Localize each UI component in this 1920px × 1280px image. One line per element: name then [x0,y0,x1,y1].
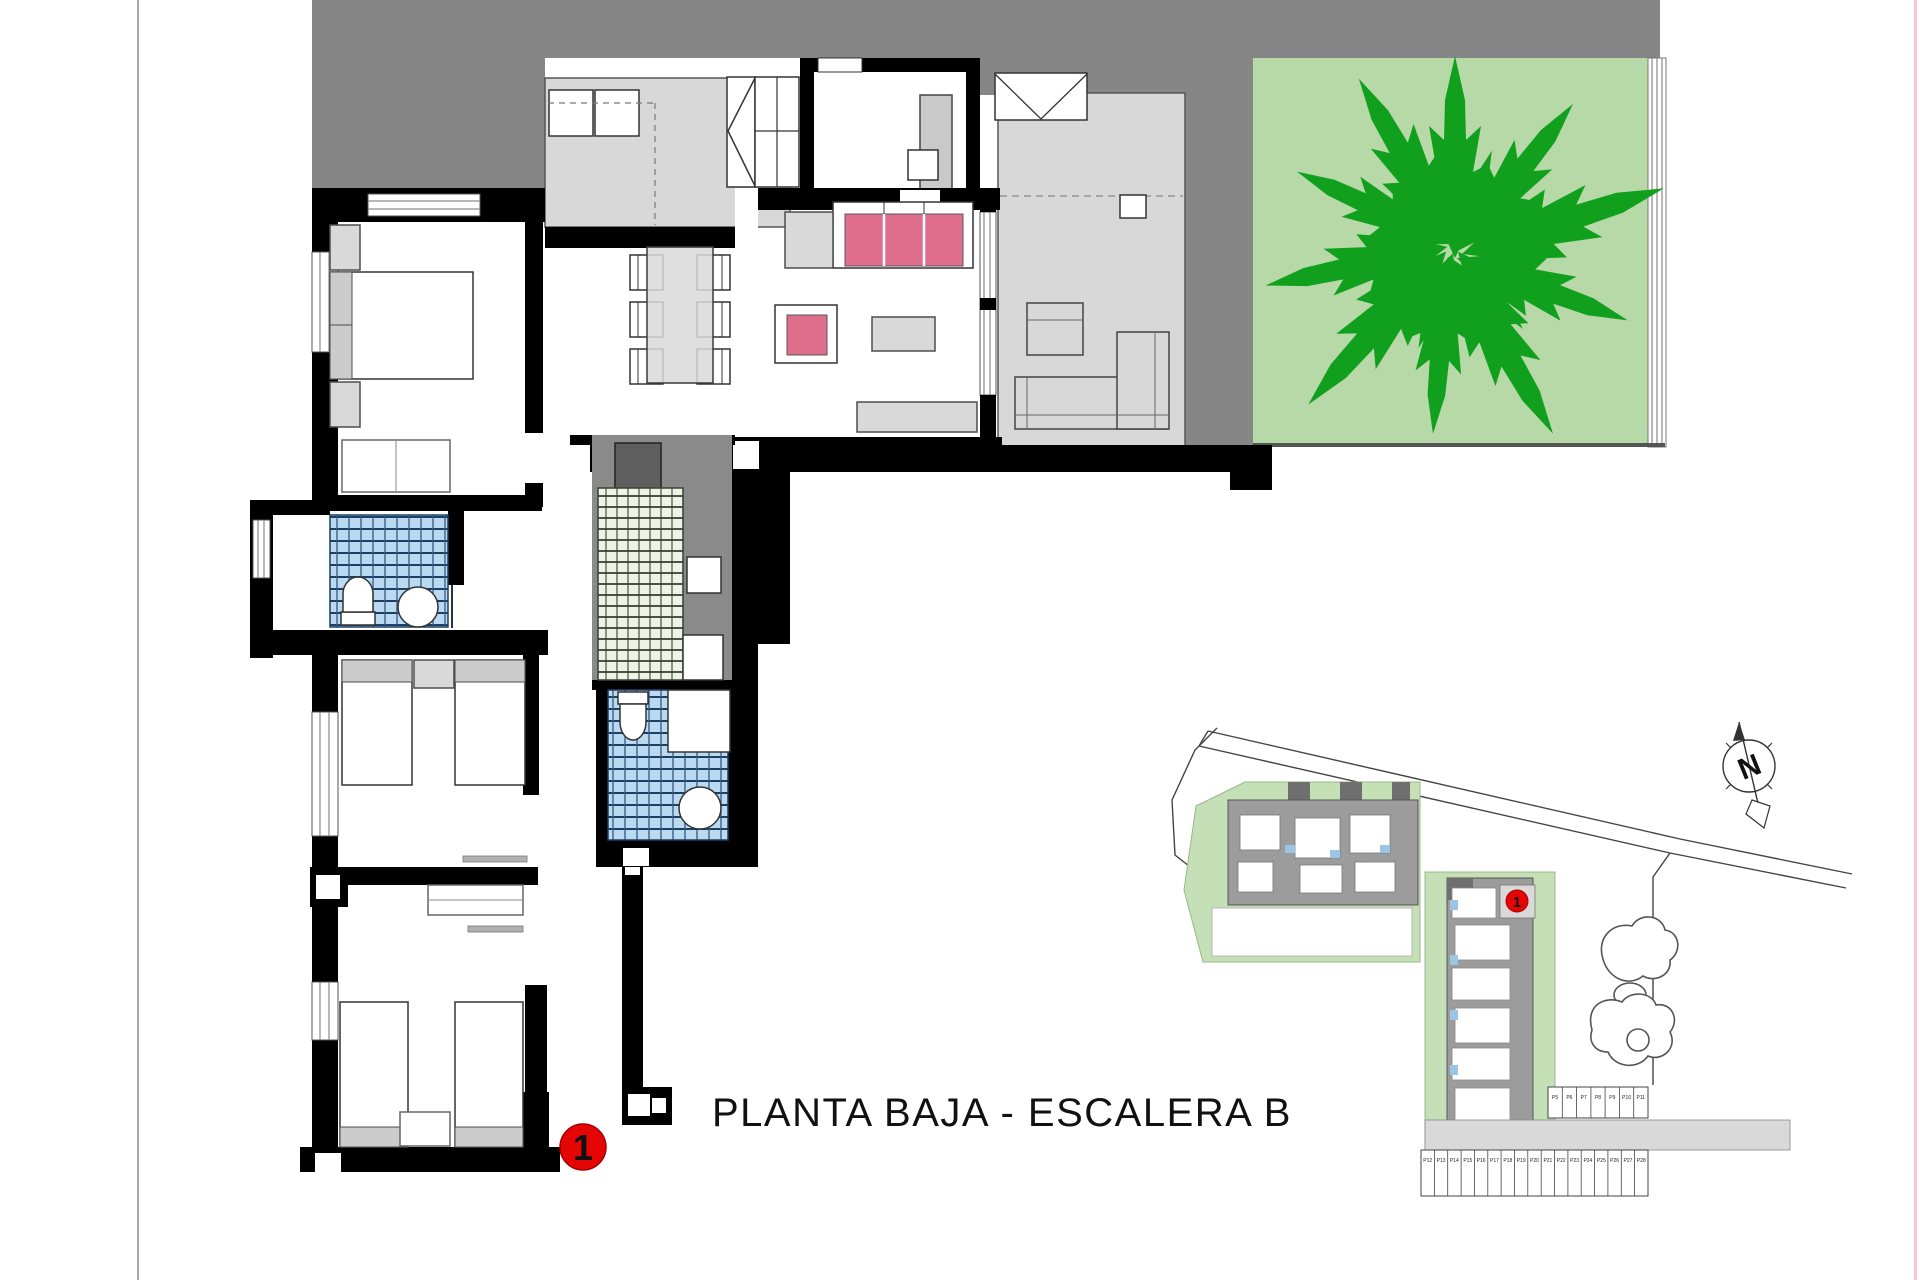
parking-label: P21 [1543,1158,1552,1164]
folding-door [727,77,755,187]
parking-row-bottom: P12 P13 P14 P15 P16 P17 P18 P19 P20 P21 … [1421,1150,1648,1196]
parking-label: P12 [1423,1158,1432,1164]
window [312,982,338,1040]
appliance [687,557,721,593]
shower-tray [668,690,730,752]
armchair-pink [775,305,837,363]
parking-label: P20 [1530,1158,1539,1164]
parking-label: P23 [1570,1158,1579,1164]
window [368,194,480,216]
nightstand [330,225,360,270]
terrace-stool [1120,195,1146,218]
single-bed [455,1002,523,1147]
armchair-gray [785,212,833,268]
porch-bench-cushion [549,90,593,136]
unit-marker: 1 [560,1124,606,1170]
master-bedroom [330,194,480,492]
bathroom-1 [330,515,448,627]
site-walkway [1425,1120,1790,1150]
sink-icon [398,587,438,627]
awning [995,73,1087,120]
window [312,712,338,836]
parking-label: P7 [1581,1095,1587,1101]
water-heater [615,443,661,491]
site-block-right: 1 [1425,872,1555,1162]
floorplan-sheet: 1 PLANTA BAJA - ESCALERA B [0,0,1920,1280]
bed-headboard [455,660,525,682]
sideboard [857,402,977,432]
parking-label: P13 [1437,1158,1446,1164]
parking-row-right: P5 P6 P7 P8 P9 P10 P11 [1548,1087,1648,1118]
kitchen-appliance [908,150,938,180]
appliance [683,635,723,680]
window [980,188,996,445]
parking-label: P24 [1583,1158,1592,1164]
parking-label: P26 [1610,1158,1619,1164]
terrace-table [1027,303,1083,355]
unit-marker-number: 1 [573,1127,593,1168]
single-bed [340,1002,408,1147]
parking-label: P17 [1490,1158,1499,1164]
page-title: PLANTA BAJA - ESCALERA B [712,1091,1292,1135]
kitchen [800,58,980,195]
parking-label: P27 [1624,1158,1633,1164]
patio-tiles [598,488,683,680]
garden [1253,56,1676,453]
nightstand [400,1112,450,1146]
parking-label: P9 [1609,1095,1615,1101]
bed-headboard [342,660,412,682]
bed-headboard [340,1127,408,1147]
bed-headboard [455,1127,523,1147]
bathroom-2 [608,690,730,840]
parking-label: P10 [1622,1095,1631,1101]
toilet-icon [341,577,375,625]
dining-table [647,247,713,383]
parking-label: P14 [1450,1158,1459,1164]
parking-label: P18 [1503,1158,1512,1164]
edge-artifact-line [1914,0,1917,1280]
nightstand [414,660,454,688]
sofa-3seat [833,202,973,268]
coffee-table [872,317,935,351]
dining-set [630,247,730,384]
parking-label: P16 [1477,1158,1486,1164]
window [253,520,270,578]
site-unit-marker-number: 1 [1513,894,1521,911]
parking-label: P5 [1552,1095,1558,1101]
toilet-icon [618,692,648,740]
parking-label: P15 [1463,1158,1472,1164]
north-arrow-icon: N [1723,722,1775,828]
bedroom-3 [340,1002,523,1147]
porch-bench-cushion [595,90,639,136]
parking-label: P19 [1517,1158,1526,1164]
parking-label: P28 [1637,1158,1646,1164]
parking-label: P11 [1637,1095,1646,1101]
sink-icon [679,787,721,829]
window-sill [468,926,523,932]
north-letter: N [1733,748,1765,787]
service-patio [592,435,732,680]
parking-label: P22 [1557,1158,1566,1164]
parking-label: P6 [1566,1095,1572,1101]
parking-label: P8 [1595,1095,1601,1101]
floorplan-canvas: 1 PLANTA BAJA - ESCALERA B [0,0,1920,1280]
parking-label: P25 [1597,1158,1606,1164]
nightstand [330,382,360,427]
site-block-left [1184,782,1420,962]
terrace [995,73,1185,447]
window-sill [463,856,527,862]
site-pool [1591,917,1678,1065]
